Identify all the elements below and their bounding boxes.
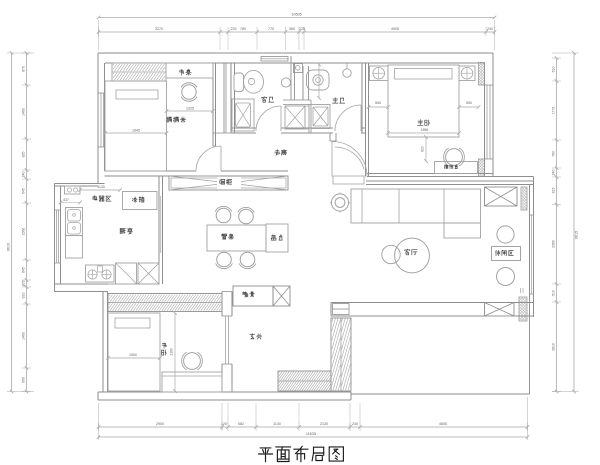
svg-text:240: 240 — [352, 422, 358, 426]
svg-text:240: 240 — [22, 172, 26, 178]
svg-text:2100: 2100 — [170, 348, 174, 355]
svg-text:682: 682 — [238, 422, 244, 426]
svg-text:1772: 1772 — [552, 107, 556, 115]
svg-text:4655: 4655 — [439, 422, 447, 426]
svg-text:1325: 1325 — [186, 107, 194, 111]
svg-text:2360: 2360 — [552, 240, 556, 248]
svg-text:1896: 1896 — [421, 128, 429, 132]
svg-text:205: 205 — [22, 281, 26, 287]
svg-text:2810: 2810 — [552, 343, 556, 351]
svg-text:1140: 1140 — [273, 422, 281, 426]
svg-text:550: 550 — [375, 101, 381, 105]
svg-text:10695: 10695 — [291, 13, 302, 17]
svg-text:1460: 1460 — [22, 108, 26, 116]
svg-text:610: 610 — [552, 67, 556, 73]
svg-text:610: 610 — [22, 293, 26, 299]
svg-text:2130: 2130 — [320, 422, 328, 426]
svg-text:9610: 9610 — [7, 243, 11, 251]
svg-text:760: 760 — [552, 151, 556, 157]
svg-text:4905: 4905 — [391, 27, 399, 31]
svg-text:870: 870 — [22, 66, 26, 72]
svg-text:620: 620 — [421, 146, 425, 152]
svg-text:645: 645 — [22, 267, 26, 273]
svg-text:1460: 1460 — [22, 332, 26, 340]
svg-text:1500: 1500 — [129, 353, 137, 357]
svg-text:240: 240 — [552, 170, 556, 176]
svg-text:1645: 1645 — [132, 129, 140, 133]
svg-text:360: 360 — [289, 27, 295, 31]
svg-text:660: 660 — [22, 377, 26, 383]
svg-text:780: 780 — [240, 27, 246, 31]
svg-text:437: 437 — [63, 198, 69, 202]
svg-text:1660: 1660 — [22, 228, 26, 236]
svg-text:225: 225 — [231, 27, 237, 31]
svg-text:125: 125 — [299, 27, 305, 31]
svg-text:9615: 9615 — [575, 231, 579, 239]
svg-text:510: 510 — [552, 290, 556, 296]
svg-text:3270: 3270 — [155, 27, 163, 31]
svg-text:240: 240 — [487, 27, 493, 31]
svg-text:550: 550 — [466, 101, 472, 105]
svg-text:835: 835 — [22, 152, 26, 158]
svg-text:645: 645 — [22, 188, 26, 194]
svg-text:2900: 2900 — [156, 422, 164, 426]
svg-text:770: 770 — [268, 27, 274, 31]
svg-text:11635: 11635 — [306, 432, 316, 436]
svg-text:815: 815 — [552, 188, 556, 194]
svg-text:1133: 1133 — [97, 185, 104, 189]
